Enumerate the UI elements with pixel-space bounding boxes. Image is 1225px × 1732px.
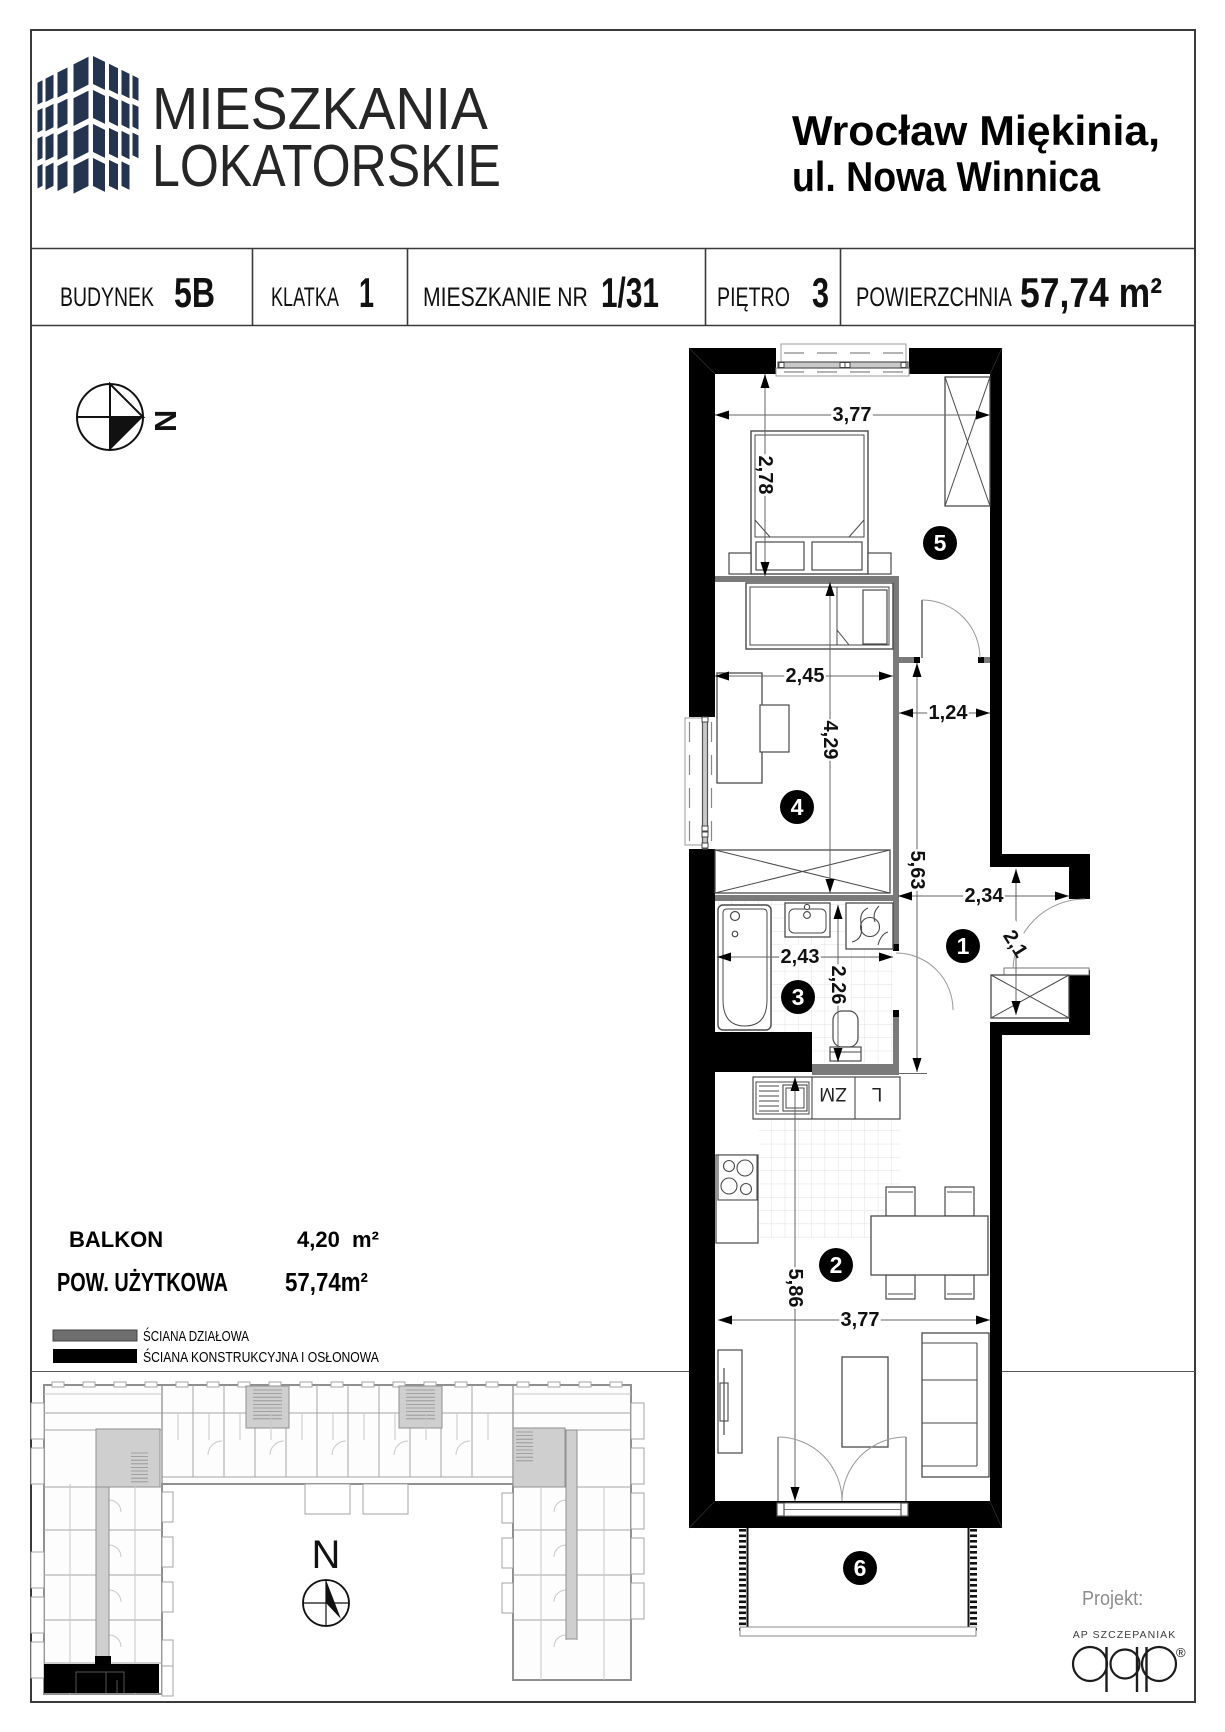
svg-text:POWIERZCHNIA: POWIERZCHNIA <box>856 282 1012 313</box>
svg-text:5: 5 <box>934 530 947 556</box>
svg-text:PIĘTRO: PIĘTRO <box>717 282 790 312</box>
svg-text:2,78: 2,78 <box>754 456 776 495</box>
svg-text:3: 3 <box>812 269 829 316</box>
svg-text:BALKON: BALKON <box>69 1227 163 1252</box>
svg-text:Projekt:: Projekt: <box>1082 1588 1143 1610</box>
svg-text:AP SZCZEPANIAK: AP SZCZEPANIAK <box>1073 1629 1177 1641</box>
svg-text:4,29: 4,29 <box>819 721 841 760</box>
svg-text:5,86: 5,86 <box>784 1269 806 1308</box>
svg-text:3,77: 3,77 <box>833 404 872 426</box>
svg-text:5B: 5B <box>174 269 215 316</box>
svg-text:ŚCIANA KONSTRUKCYJNA I OSŁONOW: ŚCIANA KONSTRUKCYJNA I OSŁONOWA <box>143 1349 380 1365</box>
svg-text:5,63: 5,63 <box>906 851 928 890</box>
svg-text:3,77: 3,77 <box>841 1309 880 1331</box>
svg-text:2,26: 2,26 <box>827 966 849 1005</box>
svg-text:1: 1 <box>359 270 374 316</box>
svg-text:MIESZKANIE NR: MIESZKANIE NR <box>423 283 588 313</box>
svg-text:KLATKA: KLATKA <box>271 281 339 312</box>
svg-text:Wrocław Miękinia,: Wrocław Miękinia, <box>792 107 1160 154</box>
svg-text:3: 3 <box>792 984 805 1010</box>
svg-text:57,74m²: 57,74m² <box>285 1268 368 1297</box>
svg-text:2: 2 <box>830 1252 843 1278</box>
svg-text:LOKATORSKIE: LOKATORSKIE <box>152 132 501 199</box>
svg-text:2,34: 2,34 <box>965 885 1005 907</box>
svg-text:POW. UŻYTKOWA: POW. UŻYTKOWA <box>57 1267 228 1296</box>
svg-text:L: L <box>872 1083 883 1104</box>
svg-text:57,74 m²: 57,74 m² <box>1020 270 1162 316</box>
svg-text:4: 4 <box>791 794 804 820</box>
svg-text:®: ® <box>1176 1645 1186 1660</box>
svg-text:N: N <box>312 1533 341 1577</box>
svg-text:6: 6 <box>854 1555 867 1581</box>
svg-text:ZM: ZM <box>819 1083 846 1104</box>
svg-text:4,20 m²: 4,20 m² <box>297 1227 379 1252</box>
svg-text:2,43: 2,43 <box>781 946 820 968</box>
svg-text:1: 1 <box>957 933 970 959</box>
svg-text:1/31: 1/31 <box>601 269 659 316</box>
svg-text:ul. Nowa Winnica: ul. Nowa Winnica <box>792 154 1101 200</box>
svg-text:ŚCIANA DZIAŁOWA: ŚCIANA DZIAŁOWA <box>143 1328 249 1345</box>
svg-text:N: N <box>148 410 183 432</box>
svg-text:1,24: 1,24 <box>929 702 969 724</box>
svg-text:BUDYNEK: BUDYNEK <box>60 282 154 312</box>
svg-text:2,45: 2,45 <box>786 665 825 687</box>
